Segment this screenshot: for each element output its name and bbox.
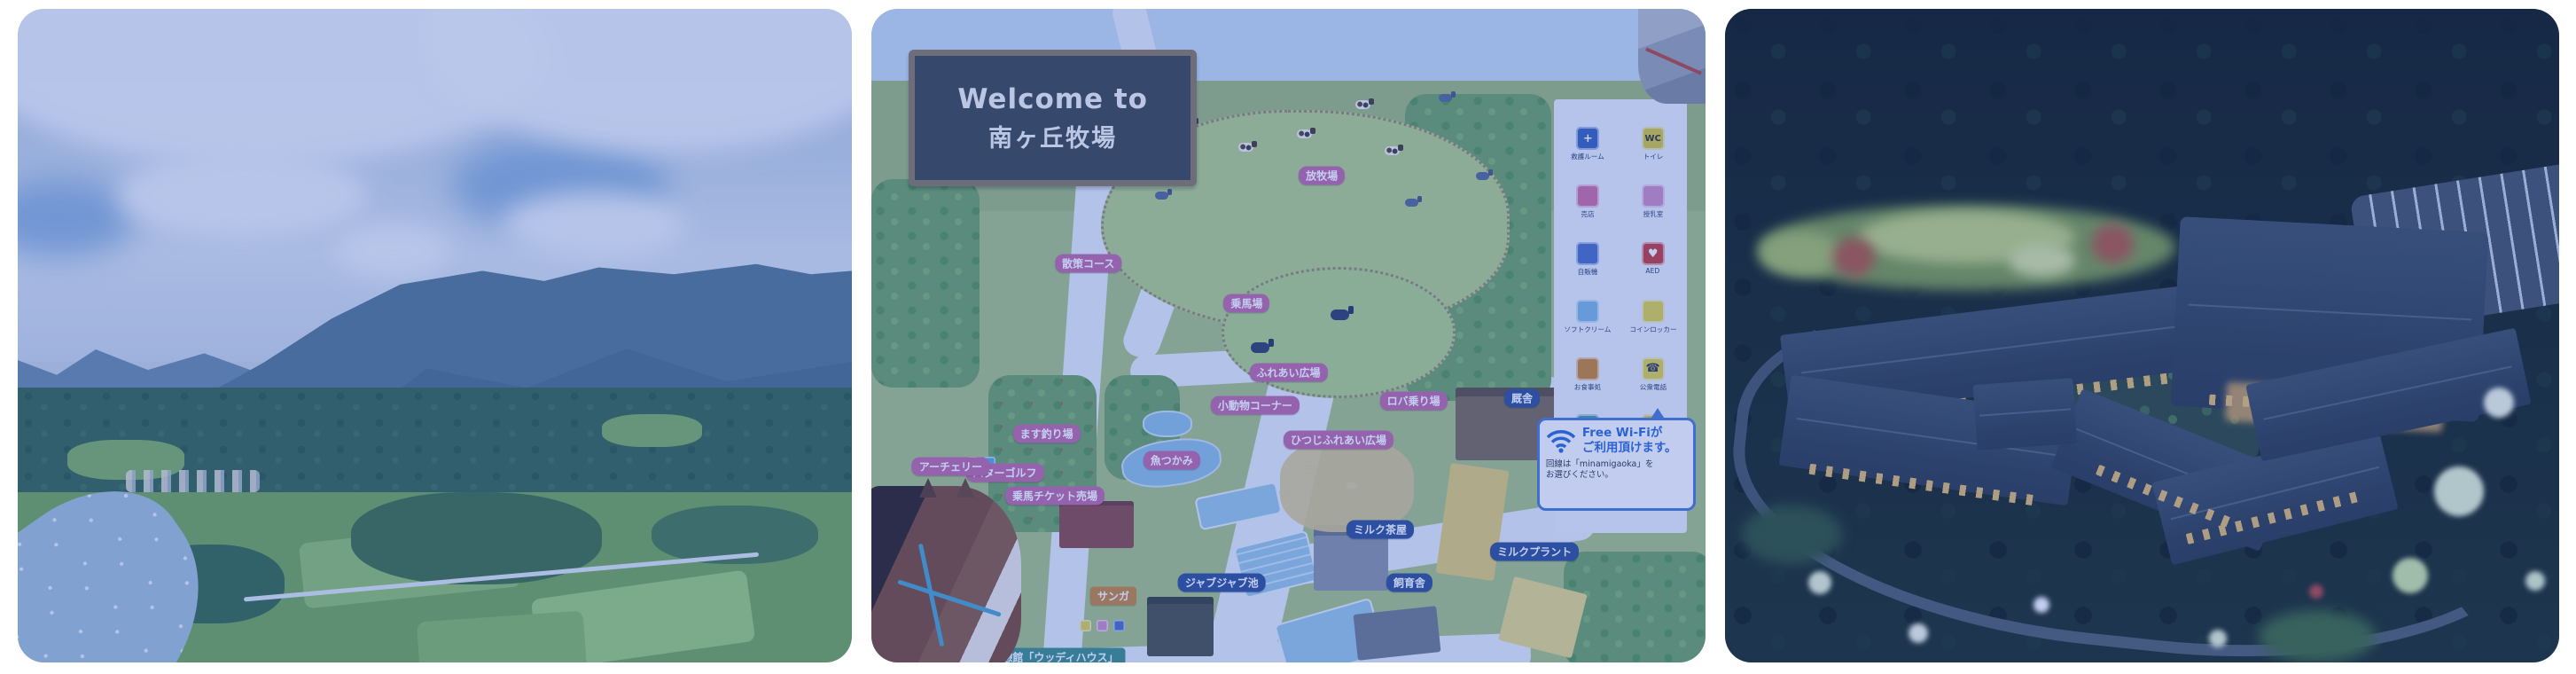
toilet-icon: WC [1642,127,1665,150]
map-label-fish-catching: 魚つかみ [1144,451,1200,469]
lit-trees-bright [2009,244,2075,277]
gray-building [1353,606,1440,660]
cow-icon [1238,143,1253,152]
coin-locker-icon [1642,300,1665,323]
map-label-petting-plaza: ふれあい広場 [1249,363,1327,381]
light-glow [1808,571,1831,594]
legend-restaurant: お食事処 [1556,357,1620,392]
nursing-room-icon [1642,184,1665,208]
map-label-donkey-ride: ロバ乗り場 [1380,392,1448,411]
map-label-sheep-plaza: ひつじふれあい広場 [1284,431,1393,450]
legend-softcream: ソフトクリーム [1556,300,1620,334]
horse-icon [1331,310,1349,320]
gallery-photo-resort-night[interactable] [1725,9,2559,662]
donkey-icon [1405,199,1418,207]
vending-icon [1113,620,1125,631]
legend-aed: ♥AED [1620,242,1685,277]
map-label-small-animals: 小動物コーナー [1211,396,1300,415]
donkey-icon [1155,192,1168,200]
cow-icon [1385,146,1400,155]
donkey-icon [1439,94,1452,102]
wifi-note-line2: お選びください。 [1546,470,1687,481]
donkey-icon [1476,172,1489,180]
first-aid-icon: + [1576,127,1599,150]
legend-nursing-room: 授乳室 [1620,184,1685,219]
wifi-callout: Free Wi-Fiが ご利用頂けます。 回線は「minamigaoka」を お… [1537,418,1696,511]
welcome-sign-line2: 南ヶ丘牧場 [988,119,1117,153]
nursing-icon [1097,620,1108,631]
forest-strip [1564,552,1706,662]
wifi-note-line1: 回線は「minamigaoka」を [1546,459,1687,470]
dark-building [1147,597,1214,655]
animal-plaza-ground [1280,440,1414,531]
photo-gallery-strip: Welcome to 南ヶ丘牧場 ↑ 至 那須サファリパーク 放牧場 散策コース… [18,9,2559,662]
map-label-ticket-office: 乗馬チケット売場 [1005,487,1105,505]
map-label-walking-course: 散策コース [1055,255,1121,273]
map-label-stable: 厩舎 [1504,389,1540,408]
wifi-arcs-icon [1546,428,1576,453]
horse-ear [956,478,974,498]
light-glow [1909,623,1928,643]
map-label-milk-teahouse: ミルク茶屋 [1347,520,1414,538]
welcome-sign-line1: Welcome to [957,83,1148,115]
legend-toilet: WCトイレ [1620,127,1685,161]
light-glow [2393,558,2428,593]
cloud [502,192,685,257]
horse-photo-cutout [871,486,1021,662]
lit-canopy [2259,610,2376,662]
donkey-halter [1645,47,1702,74]
cloud [335,224,452,277]
gallery-photo-landscape[interactable] [18,9,852,662]
map-label-milk-plant: ミルクプラント [1490,542,1579,560]
village-houses [126,470,260,493]
pavilion-roof [1973,378,2078,450]
horse-halter [897,579,1001,616]
lit-trees [1759,231,1842,278]
legend-locker: コインロッカー [1620,300,1685,334]
map-label-splash-pond: ジャブジャブ池 [1178,574,1266,592]
map-label-archery: アーチェリー [912,457,989,475]
legend-first-aid: +救護ルーム [1556,127,1620,161]
meadow-patch [602,414,702,447]
horse-ear [919,478,937,498]
light-glow [2434,466,2484,516]
restaurant-icon [1576,357,1599,380]
cloud [118,153,368,238]
legend-shop: 売店 [1556,184,1620,219]
wifi-title-line1: Free Wi-Fiが [1582,426,1677,441]
red-roof-house [1059,505,1135,548]
legend-vending: 自販機 [1556,242,1620,277]
lit-canopy [1742,505,1842,564]
gallery-photo-farm-map[interactable]: Welcome to 南ヶ丘牧場 ↑ 至 那須サファリパーク 放牧場 散策コース… [871,9,1706,662]
forest-strip [871,179,980,388]
small-pond [1143,411,1192,436]
legend-phone: ☎公衆電話 [1620,357,1685,392]
cow-icon [1355,100,1370,109]
map-label-animal-shed: 飼育舎 [1386,574,1432,592]
horse-icon [1251,342,1269,353]
vending-machine-icon [1576,242,1599,265]
shop-icon [1576,184,1599,208]
red-light [2309,584,2323,599]
toilet-icon [1080,620,1091,631]
soft-cream-icon [1576,300,1599,323]
wifi-title-line2: ご利用頂けます。 [1582,441,1677,456]
cow-icon [1297,129,1312,138]
map-label-riding-ground: 乗馬場 [1223,294,1269,312]
welcome-signboard: Welcome to 南ヶ丘牧場 [909,50,1197,187]
map-label-trout-fishing: ます釣り場 [1013,425,1081,443]
donkey-photo-cutout [1638,9,1706,104]
map-label-grazing-field: 放牧場 [1299,166,1345,184]
map-label-sanga: サンガ [1090,586,1136,605]
aed-icon: ♥ [1642,242,1665,265]
light-glow [2209,630,2227,647]
public-phone-icon: ☎ [1642,357,1665,380]
